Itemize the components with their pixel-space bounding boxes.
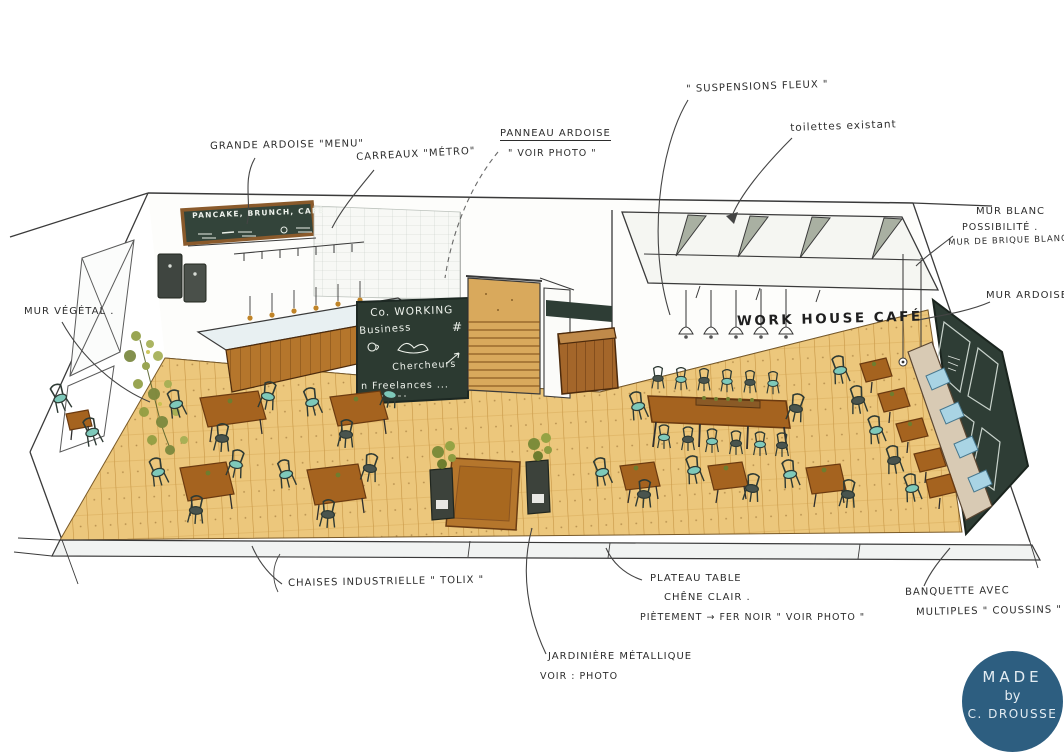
annotation-mur-vegetal: MUR VÉGÉTAL . [24,306,114,317]
annotation-plateau-line1: PLATEAU TABLE [650,573,742,584]
maker-badge: MADE by C. DROUSSE [962,651,1063,752]
annotation-mur-ardoise: MUR ARDOISE [986,290,1064,301]
annotation-panneau-ardoise-line1: PANNEAU ARDOISE [500,128,611,139]
annotation-banquette-line1: BANQUETTE AVEC [905,585,1010,598]
staircase [466,276,542,394]
annotation-jardiniere-line2: VOIR : PHOTO [540,671,618,682]
badge-line3: C. DROUSSE [962,707,1063,721]
chalkboard-text-line4: n Freelances ... [361,379,449,392]
sketch-page: GRANDE ARDOISE "MENU" CARREAUX "MÉTRO" P… [0,0,1064,754]
entrance-mat [446,458,520,530]
chalkboard-text-hash: # [452,320,463,334]
annotation-mur-blanc-line1: MUR BLANC [976,206,1045,217]
annotation-panneau-ardoise-line2: " VOIR PHOTO " [508,148,597,159]
annotation-plateau-line3: PIÈTEMENT → FER NOIR " VOIR PHOTO " [640,612,865,623]
badge-line1: MADE [962,668,1063,686]
annotation-plateau-line2: CHÊNE CLAIR . [664,592,751,603]
annotation-mur-blanc-line2: POSSIBILITÉ . [962,222,1038,233]
sketch-canvas [0,0,1064,754]
annotation-jardiniere-line1: JARDINIÈRE MÉTALLIQUE [548,651,692,662]
wooden-crate [558,328,618,394]
badge-line2: by [962,689,1063,704]
